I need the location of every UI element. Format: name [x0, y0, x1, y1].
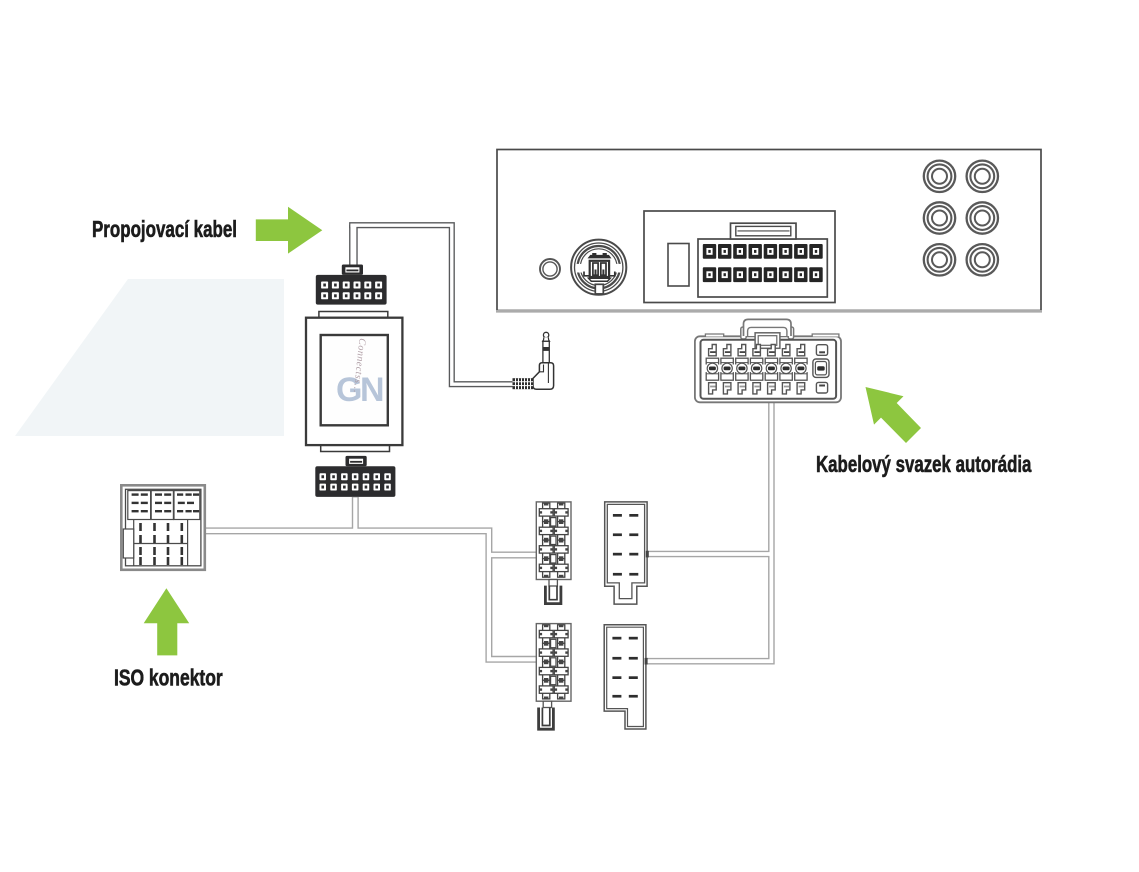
svg-text:ISO konektor: ISO konektor	[114, 666, 223, 691]
svg-text:Kabelový svazek autorádia: Kabelový svazek autorádia	[816, 452, 1032, 477]
svg-text:Propojovací kabel: Propojovací kabel	[92, 217, 237, 242]
